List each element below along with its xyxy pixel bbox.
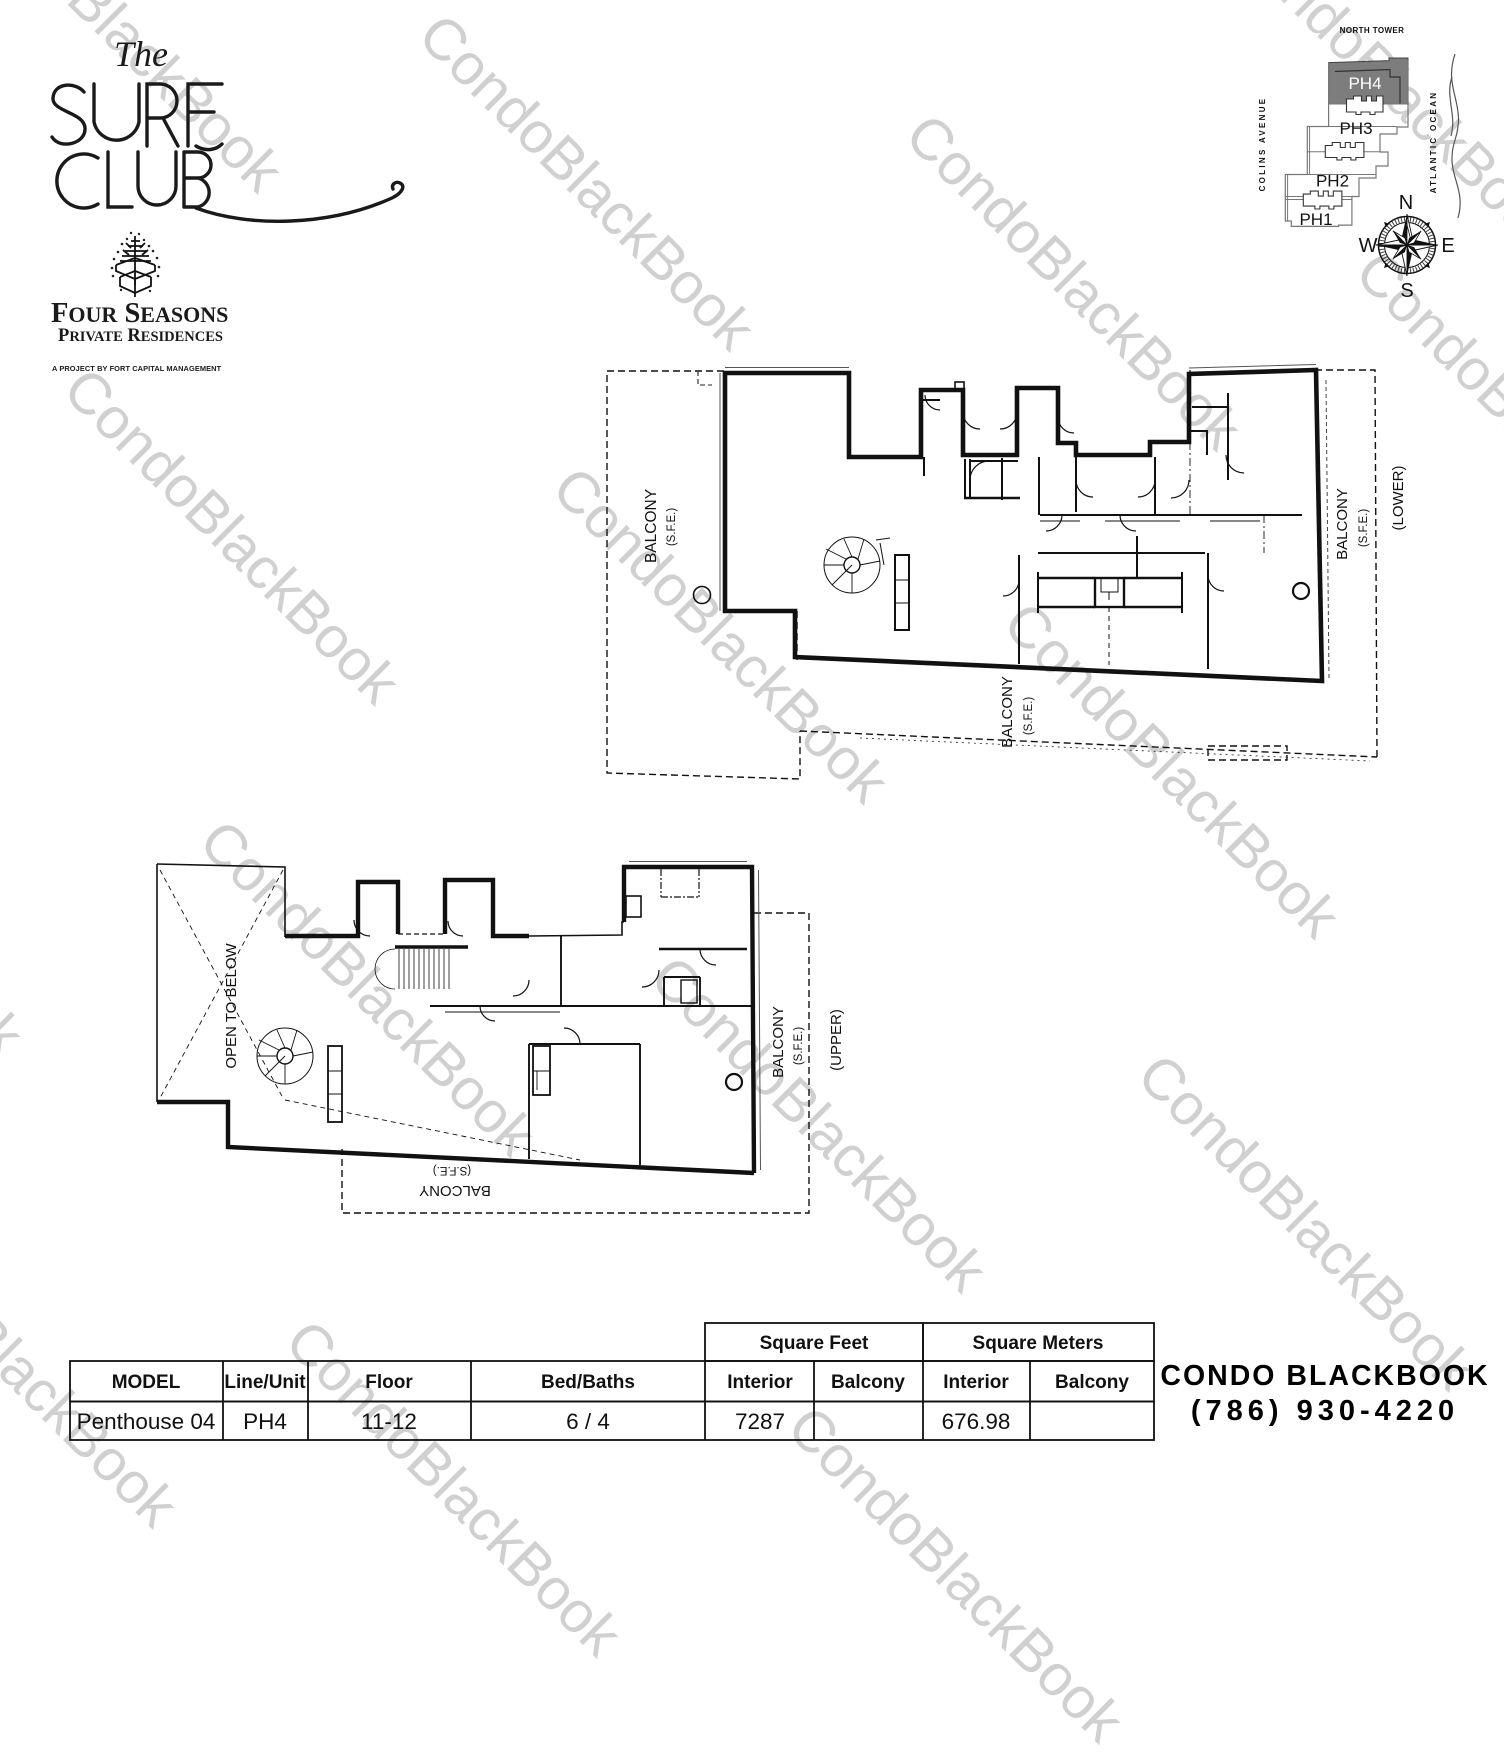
svg-text:Bed/Baths: Bed/Baths (541, 1372, 635, 1393)
svg-text:BALCONY: BALCONY (999, 676, 1016, 748)
svg-text:(S.F.E.): (S.F.E.) (1358, 509, 1370, 548)
svg-text:PH3: PH3 (1339, 119, 1372, 138)
svg-text:(S.F.E.): (S.F.E.) (1023, 697, 1035, 736)
svg-text:Floor: Floor (365, 1372, 413, 1393)
svg-text:Square Feet: Square Feet (760, 1333, 869, 1354)
svg-text:N: N (1399, 192, 1413, 214)
svg-text:E: E (1441, 235, 1454, 257)
svg-text:Interior: Interior (943, 1372, 1009, 1393)
svg-text:NORTH TOWER: NORTH TOWER (1340, 26, 1405, 35)
svg-text:Interior: Interior (727, 1372, 793, 1393)
svg-text:COLINS AVENUE: COLINS AVENUE (1258, 97, 1267, 192)
svg-text:A PROJECT BY FORT CAPITAL MANA: A PROJECT BY FORT CAPITAL MANAGEMENT (52, 364, 222, 373)
svg-text:BALCONY: BALCONY (770, 1006, 787, 1078)
svg-text:OPEN TO BELOW: OPEN TO BELOW (223, 943, 240, 1069)
svg-text:(S.F.E.): (S.F.E.) (666, 508, 678, 547)
svg-text:11-12: 11-12 (361, 1409, 417, 1434)
svg-text:PH2: PH2 (1316, 172, 1349, 191)
svg-text:Penthouse 04: Penthouse 04 (77, 1409, 216, 1434)
svg-text:(UPPER): (UPPER) (828, 1009, 845, 1071)
svg-text:BALCONY: BALCONY (643, 489, 660, 563)
svg-text:PH4: PH4 (243, 1409, 287, 1434)
svg-text:Balcony: Balcony (1055, 1372, 1129, 1393)
svg-text:PH1: PH1 (1299, 210, 1332, 229)
svg-text:(S.F.E.): (S.F.E.) (793, 1027, 805, 1066)
svg-text:Balcony: Balcony (831, 1372, 905, 1393)
svg-text:BALCONY: BALCONY (419, 1182, 491, 1199)
svg-text:PH4: PH4 (1348, 74, 1381, 93)
svg-text:6 / 4: 6 / 4 (566, 1409, 610, 1434)
svg-text:676.98: 676.98 (942, 1409, 1011, 1434)
svg-text:BALCONY: BALCONY (1334, 488, 1351, 560)
svg-text:7287: 7287 (735, 1409, 785, 1434)
svg-text:PRIVATE RESIDENCES: PRIVATE RESIDENCES (58, 326, 223, 346)
svg-text:Line/Unit: Line/Unit (224, 1372, 306, 1393)
svg-text:S: S (1400, 280, 1413, 302)
svg-text:The: The (114, 34, 168, 74)
svg-text:ATLANTIC OCEAN: ATLANTIC OCEAN (1429, 91, 1438, 194)
svg-text:W: W (1359, 235, 1378, 257)
svg-text:MODEL: MODEL (112, 1372, 181, 1393)
svg-text:(S.F.E.): (S.F.E.) (433, 1164, 472, 1176)
svg-text:Square Meters: Square Meters (973, 1333, 1104, 1354)
svg-text:FOUR SEASONS: FOUR SEASONS (51, 298, 228, 329)
svg-text:(LOWER): (LOWER) (1390, 466, 1407, 531)
